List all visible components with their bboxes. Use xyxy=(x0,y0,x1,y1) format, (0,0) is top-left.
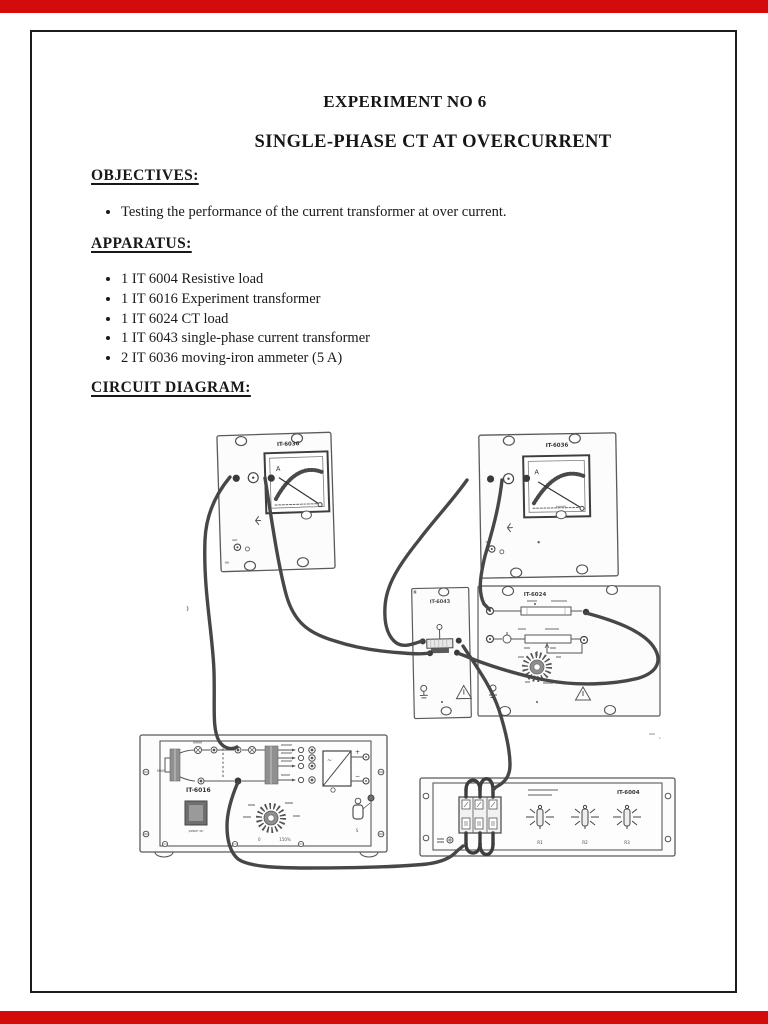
dial-max-label: 150% xyxy=(279,837,291,842)
objectives-list: Testing the performance of the current t… xyxy=(32,203,506,221)
circuit-diagram-svg: IT-6036 A xyxy=(135,420,695,890)
panel-label: IT-6016 xyxy=(186,787,211,794)
panel-label: IT-6036 xyxy=(546,443,569,449)
apparatus-item: 1 IT 6043 single-phase current transform… xyxy=(121,329,370,349)
panel-label: IT-6043 xyxy=(430,599,451,605)
scanned-document-page: EXPERIMENT NO 6 SINGLE-PHASE CT AT OVERC… xyxy=(0,0,768,1024)
apparatus-item: 1 IT 6024 CT load xyxy=(121,310,370,330)
range-connector xyxy=(556,511,566,519)
document-subtitle: SINGLE-PHASE CT AT OVERCURRENT xyxy=(255,132,612,153)
range-connector xyxy=(301,511,311,519)
scan-artifact xyxy=(649,734,661,738)
panel-experiment-transformer: MAIN ~ + − IT-6016 xyxy=(140,735,387,857)
plus-label: + xyxy=(355,749,360,756)
panel-label: IT-6024 xyxy=(524,592,547,598)
analog-ammeter: A xyxy=(523,455,590,517)
switch-label: S xyxy=(356,828,359,833)
power-button-label: power on xyxy=(189,829,204,833)
panel-label: IT-6036 xyxy=(277,441,300,448)
rheostat-label: R1 xyxy=(537,840,543,845)
apparatus-item: 2 IT 6036 moving-iron ammeter (5 A) xyxy=(121,349,370,369)
panel-resistive-load: IT-6004 xyxy=(420,778,675,856)
meter-unit-label: A xyxy=(276,465,281,473)
apparatus-item: 1 IT 6004 Resistive load xyxy=(121,270,370,290)
minus-label: − xyxy=(355,773,360,780)
objectives-heading: OBJECTIVES: xyxy=(91,167,199,185)
circuit-diagram-figure: IT-6036 A xyxy=(135,420,695,890)
main-label: MAIN xyxy=(157,769,166,773)
document-page-border: EXPERIMENT NO 6 SINGLE-PHASE CT AT OVERC… xyxy=(30,30,737,993)
analog-ammeter: A xyxy=(264,451,329,513)
panel-label: IT-6004 xyxy=(617,790,640,796)
scan-artifact xyxy=(187,606,188,611)
circuit-diagram-heading: CIRCUIT DIAGRAM: xyxy=(91,379,251,397)
document-title: EXPERIMENT NO 6 xyxy=(323,92,486,112)
rheostat-label: R3 xyxy=(624,840,630,845)
apparatus-list: 1 IT 6004 Resistive load 1 IT 6016 Exper… xyxy=(32,270,370,369)
apparatus-item: 1 IT 6016 Experiment transformer xyxy=(121,290,370,310)
meter-unit-label: A xyxy=(534,468,539,476)
apparatus-heading: APPARATUS: xyxy=(91,235,192,253)
objectives-item: Testing the performance of the current t… xyxy=(121,203,506,221)
rheostat-label: R2 xyxy=(582,840,588,845)
ac-symbol: ~ xyxy=(327,757,332,764)
top-red-bar xyxy=(0,0,768,13)
bottom-red-bar xyxy=(0,1011,768,1024)
screw-hole xyxy=(235,436,246,445)
panel-ct-load: IT-6024 xyxy=(478,586,660,717)
